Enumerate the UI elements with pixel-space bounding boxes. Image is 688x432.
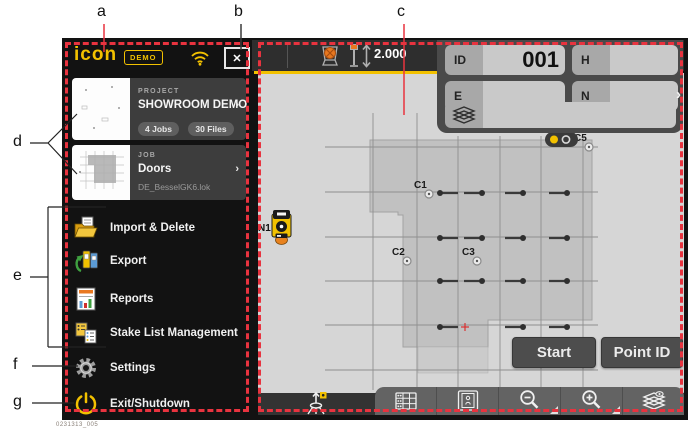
pole-height-value: 2.000 xyxy=(374,46,407,61)
project-card[interactable]: PROJECT SHOWROOM DEMO › 4 Jobs 30 Files xyxy=(72,78,246,140)
field-id-label: ID xyxy=(445,45,483,75)
callout-label-a: a xyxy=(97,3,106,21)
figure: a b c d e f g 0231313_005 icon DEMO ✕ xyxy=(0,0,688,432)
callout-label-g: g xyxy=(13,393,22,411)
callout-label-d: d xyxy=(13,133,22,151)
table-icon xyxy=(393,388,419,414)
station-setup-bar[interactable] xyxy=(258,393,375,415)
job-name: Doors xyxy=(138,163,171,175)
menu-item-label: Stake List Management xyxy=(110,327,238,339)
field-id-value: 001 xyxy=(483,45,565,75)
callout-label-f: f xyxy=(13,356,17,374)
layer-select-value xyxy=(483,102,676,128)
close-button[interactable]: ✕ xyxy=(224,47,250,69)
job-kicker: JOB xyxy=(138,152,156,159)
point-table-button[interactable] xyxy=(375,387,436,415)
sidebar-item-settings[interactable]: Settings xyxy=(70,354,250,382)
sidebar-item-exit-shutdown[interactable]: Exit/Shutdown xyxy=(70,390,250,418)
chevron-right-icon: › xyxy=(235,163,239,175)
svg-text:C3: C3 xyxy=(462,247,475,258)
sidebar-item-import-delete[interactable]: Import & Delete xyxy=(70,214,250,242)
sidebar-item-stake-list[interactable]: Stake List Management xyxy=(70,319,250,347)
files-count-badge: 30 Files xyxy=(188,122,233,136)
field-id[interactable]: ID 001 xyxy=(445,45,565,75)
layers-visibility-icon xyxy=(641,388,667,414)
wifi-icon xyxy=(190,48,210,71)
long-press-indicator xyxy=(550,406,558,414)
field-h-value xyxy=(610,45,678,75)
job-card[interactable]: JOB Doors › DE_BesselGK6.lok xyxy=(72,145,246,200)
map-toolbar xyxy=(375,387,684,415)
sidebar-item-reports[interactable]: Reports xyxy=(70,285,250,313)
jobs-count-badge: 4 Jobs xyxy=(138,122,179,136)
station-setup-icon xyxy=(304,390,330,415)
point-id-button[interactable]: Point ID xyxy=(601,337,683,368)
menu-item-label: Reports xyxy=(110,293,153,305)
job-thumbnail xyxy=(72,145,130,200)
callout-label-c: c xyxy=(397,3,405,21)
close-icon: ✕ xyxy=(232,52,241,65)
field-h[interactable]: H xyxy=(572,45,678,75)
zoom-in-button[interactable] xyxy=(560,387,622,415)
sidebar-item-export[interactable]: Export xyxy=(70,247,250,275)
field-h-label: H xyxy=(572,45,610,75)
figure-number: 0231313_005 xyxy=(56,422,98,428)
detail-view-button[interactable] xyxy=(436,387,498,415)
power-icon xyxy=(73,391,99,417)
layer-select-field[interactable] xyxy=(445,102,676,128)
menu-item-label: Exit/Shutdown xyxy=(110,398,190,410)
svg-text:C2: C2 xyxy=(392,247,405,258)
layers-icon xyxy=(445,102,483,128)
svg-text:N1: N1 xyxy=(258,223,271,234)
demo-badge: DEMO xyxy=(124,50,163,65)
export-icon xyxy=(73,248,99,274)
zoom-out-button[interactable] xyxy=(498,387,560,415)
menu-item-label: Settings xyxy=(110,362,155,374)
icon-logo: icon xyxy=(74,44,117,66)
panel-expand-chevron-icon[interactable]: › xyxy=(676,86,681,103)
zoom-in-icon xyxy=(579,388,605,414)
long-press-indicator xyxy=(612,406,620,414)
import-delete-icon xyxy=(73,215,99,241)
start-button[interactable]: Start xyxy=(512,337,596,368)
reports-icon xyxy=(73,286,99,312)
door-detail-icon xyxy=(455,388,481,414)
layers-button[interactable] xyxy=(622,387,684,415)
topbar-divider xyxy=(287,43,288,68)
job-file-name: DE_BesselGK6.lok xyxy=(138,182,210,192)
accent-divider xyxy=(254,71,437,74)
menu-item-label: Import & Delete xyxy=(110,222,195,234)
menu-item-label: Export xyxy=(110,255,146,267)
callout-label-b: b xyxy=(234,3,243,21)
updown-arrow-icon xyxy=(361,43,372,74)
stake-list-icon xyxy=(73,320,99,346)
zoom-out-icon xyxy=(517,388,543,414)
gear-icon xyxy=(73,355,99,381)
chevron-right-icon: › xyxy=(235,99,239,111)
project-name: SHOWROOM DEMO xyxy=(138,99,247,111)
coordinate-panel: ID 001 H E N xyxy=(437,40,683,133)
pole-height-icon[interactable] xyxy=(348,43,360,74)
total-station-status-icon[interactable] xyxy=(316,43,344,74)
project-kicker: PROJECT xyxy=(138,88,179,95)
svg-text:C1: C1 xyxy=(414,180,427,191)
callout-label-e: e xyxy=(13,267,22,285)
app-window: icon DEMO ✕ PROJECT S xyxy=(62,38,688,420)
project-thumbnail xyxy=(72,78,130,140)
